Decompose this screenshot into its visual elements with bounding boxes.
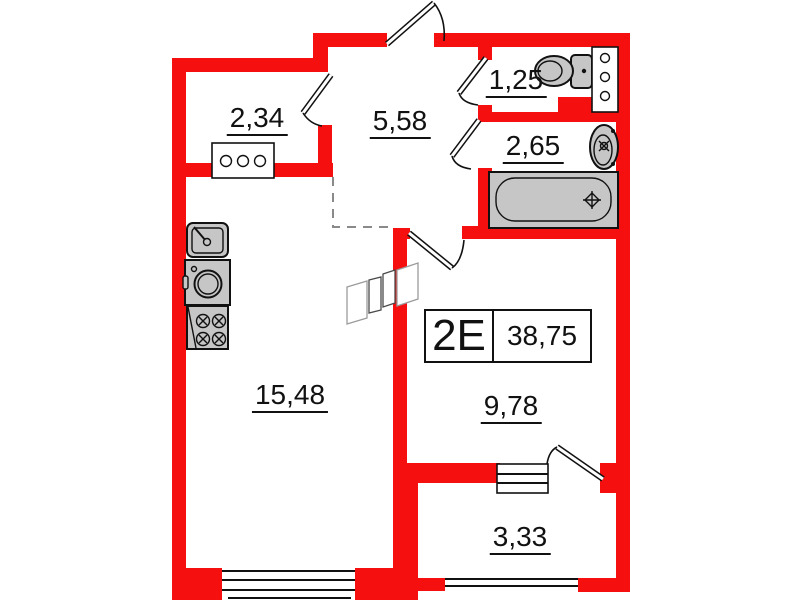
kitchen-sink-icon: [187, 223, 228, 257]
washing-machine-icon: [183, 260, 230, 305]
area-label-wardrobe: 2,34: [227, 103, 288, 136]
area-label-living-kitchen: 15,48: [252, 380, 328, 413]
balcony-door: [547, 447, 603, 479]
area-label-hallway: 5,58: [370, 106, 431, 139]
wardrobe-door: [303, 75, 331, 126]
entrance-door: [387, 3, 444, 44]
open-boundary-dashes: [333, 177, 393, 227]
plan-linework: [0, 0, 800, 600]
unit-type-label: 2E: [426, 311, 494, 361]
bathtub-icon: [489, 172, 618, 228]
floor-plan: 2,34 5,58 1,25 2,65 15,48 9,78 3,33 2E 3…: [0, 0, 800, 600]
unit-info-box: 2E 38,75: [424, 309, 592, 363]
area-label-balcony: 3,33: [490, 522, 551, 555]
area-label-wc: 1,25: [486, 65, 547, 98]
vent-shaft-icon: [592, 47, 618, 112]
stove-icon: [187, 306, 228, 349]
window-room-balcony: [497, 464, 548, 493]
vent-duct-sketch: [347, 263, 418, 324]
wash-basin-icon: [590, 125, 618, 169]
cabinet-icon: [212, 143, 274, 178]
bathroom-door: [452, 120, 479, 169]
area-label-bathroom: 2,65: [503, 131, 564, 164]
wc-door: [459, 58, 486, 105]
window-balcony: [445, 579, 578, 586]
window-living-kitchen: [222, 571, 355, 598]
unit-area-label: 38,75: [494, 311, 590, 361]
area-label-room: 9,78: [481, 391, 542, 424]
